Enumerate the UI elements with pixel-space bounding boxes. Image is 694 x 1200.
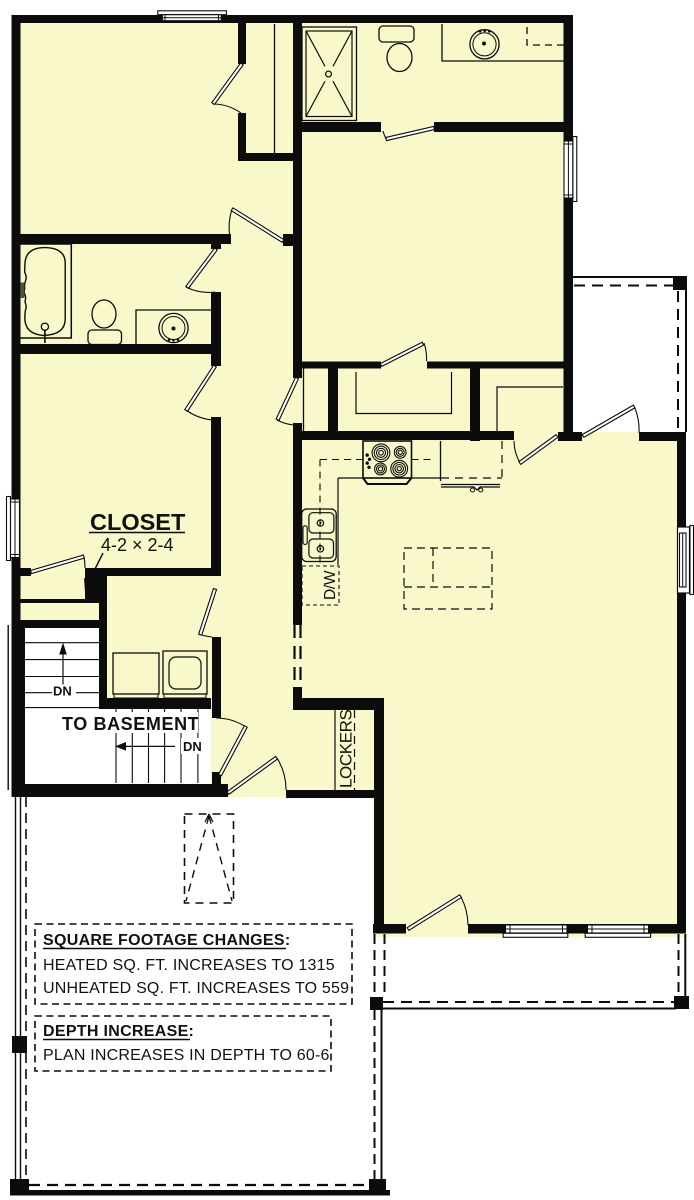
svg-text:TO BASEMENT: TO BASEMENT [62, 714, 199, 734]
svg-text:LOCKERS: LOCKERS [337, 709, 356, 788]
svg-text:UNHEATED SQ. FT. INCREASES TO: UNHEATED SQ. FT. INCREASES TO 559 [43, 980, 349, 997]
svg-text:CLOSET: CLOSET [90, 509, 186, 535]
svg-text:4-2 × 2-4: 4-2 × 2-4 [101, 535, 174, 555]
svg-text:SQUARE FOOTAGE CHANGES:: SQUARE FOOTAGE CHANGES: [43, 932, 291, 949]
svg-text:D/W: D/W [322, 570, 339, 600]
svg-text:DN: DN [53, 684, 72, 699]
svg-text:HEATED SQ. FT. INCREASES TO 13: HEATED SQ. FT. INCREASES TO 1315 [43, 957, 335, 974]
svg-text:PLAN INCREASES IN DEPTH TO 60-: PLAN INCREASES IN DEPTH TO 60-6 [43, 1047, 330, 1064]
svg-text:DEPTH INCREASE:: DEPTH INCREASE: [43, 1023, 194, 1040]
svg-text:DN: DN [183, 739, 202, 754]
